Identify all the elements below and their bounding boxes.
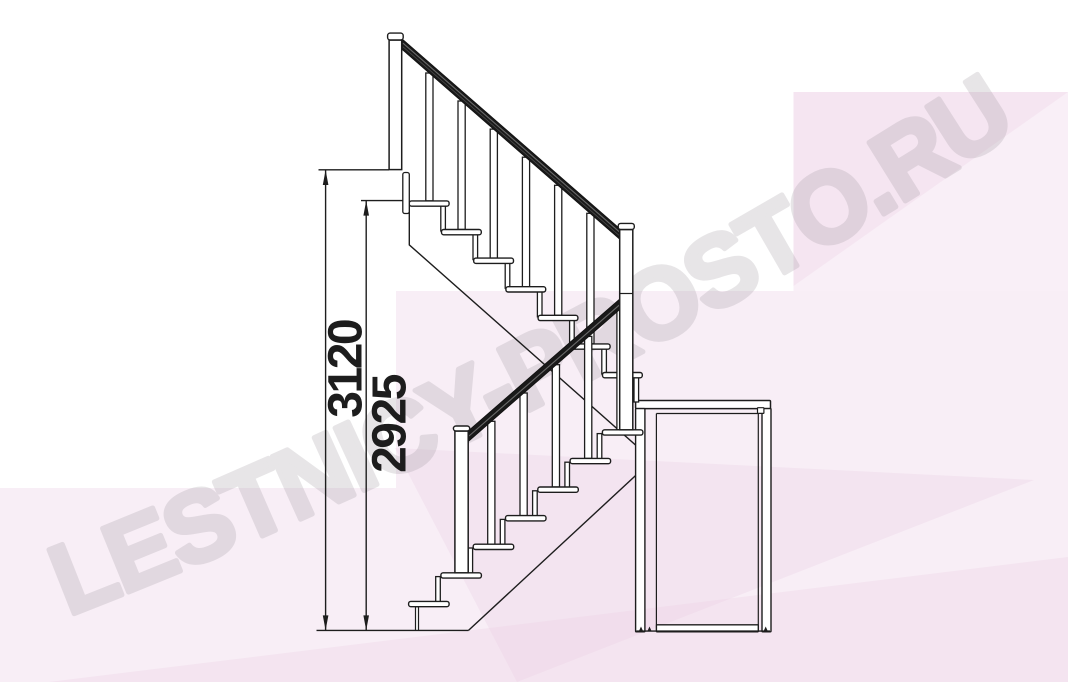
svg-text:2925: 2925 [363,374,416,473]
